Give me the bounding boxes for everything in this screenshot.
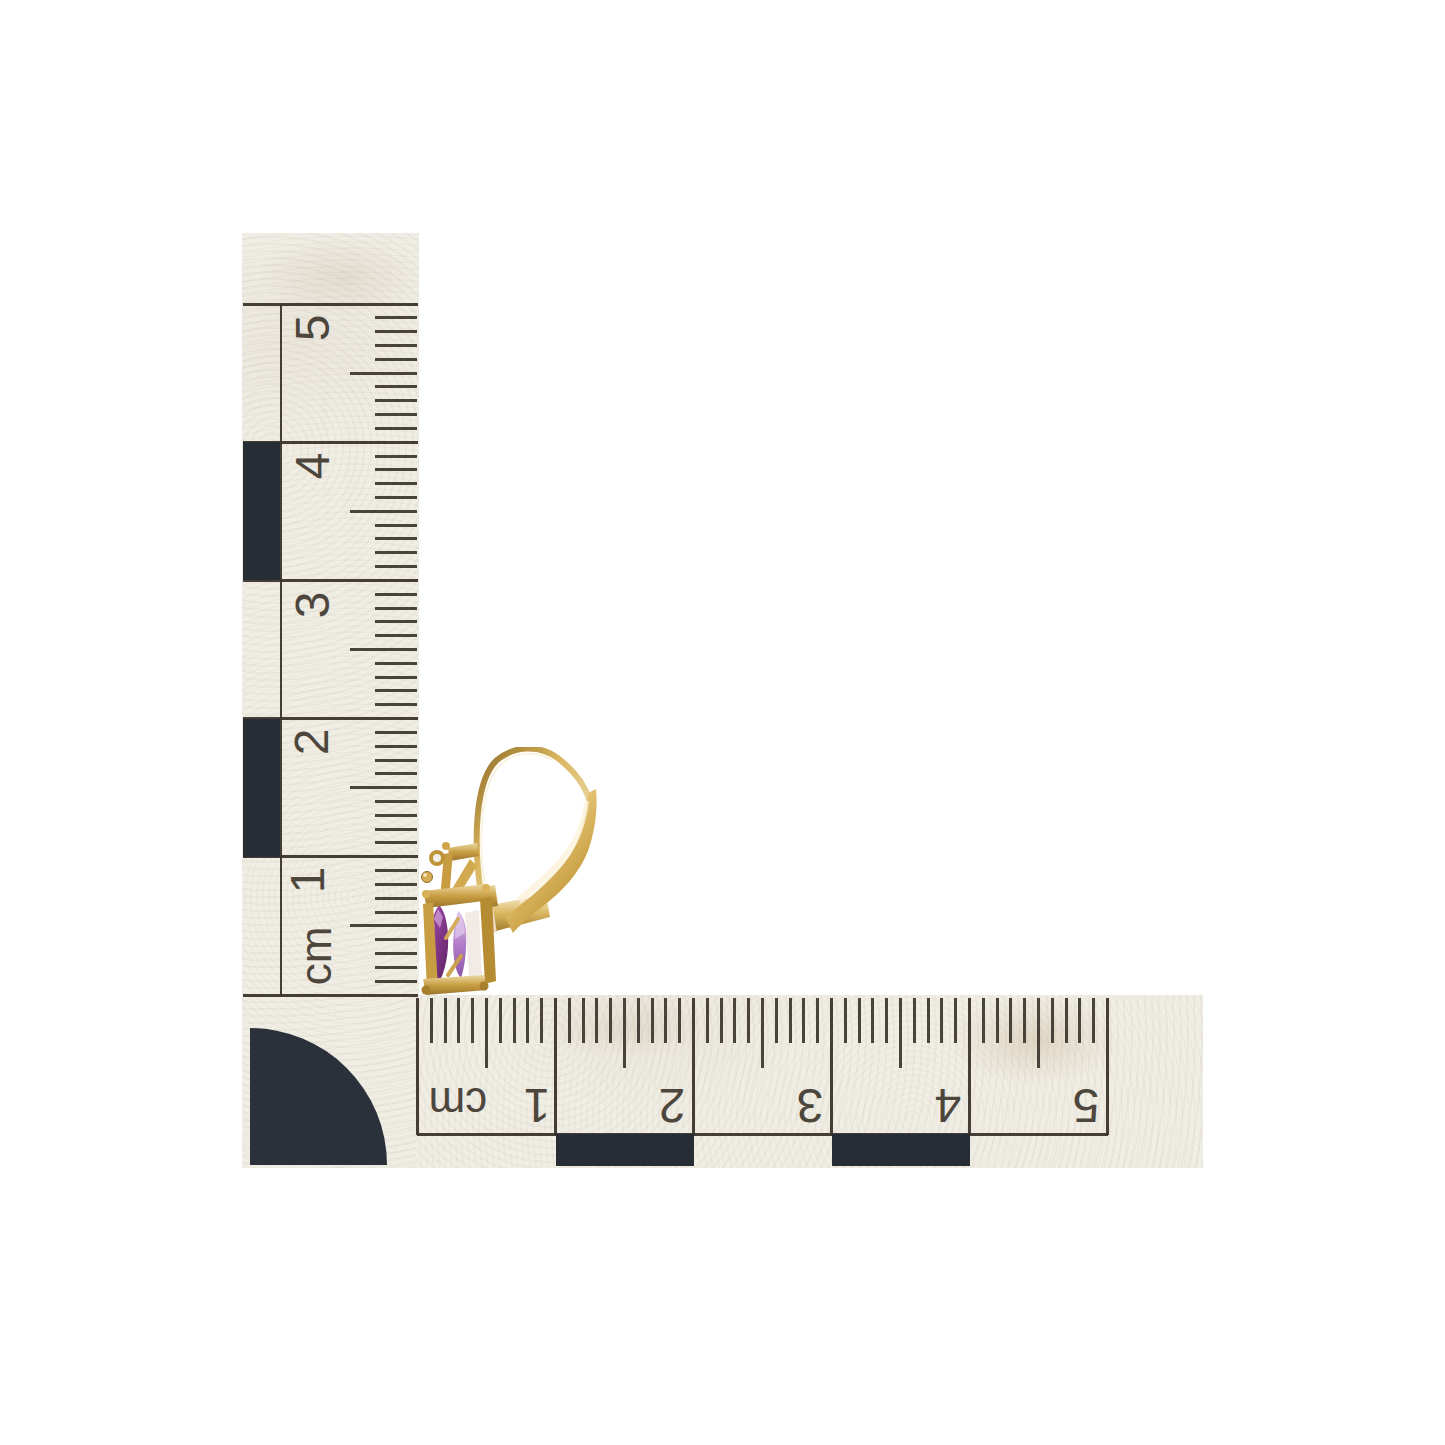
tick-mark <box>375 731 417 734</box>
tick-mark <box>678 998 681 1043</box>
tick-mark <box>844 998 847 1043</box>
tick-mark <box>375 759 417 762</box>
basket-inner-light <box>465 910 482 978</box>
scale-label-3: 3 <box>289 592 337 619</box>
tick-mark <box>375 524 417 527</box>
scale-label-1: 1 <box>284 867 332 894</box>
tick-mark <box>350 648 417 651</box>
cm-mark-line <box>830 998 833 1135</box>
tick-mark <box>375 316 417 319</box>
tick-mark <box>375 662 417 665</box>
tick-mark <box>375 689 417 692</box>
tick-mark <box>375 841 417 844</box>
tick-mark <box>526 998 529 1043</box>
tick-mark <box>375 966 417 969</box>
earring-clasp-knob <box>422 872 433 883</box>
earring <box>413 747 613 997</box>
tick-mark <box>375 330 417 333</box>
tick-mark <box>375 413 417 416</box>
tick-mark <box>664 998 667 1043</box>
basket-foot <box>422 986 431 995</box>
tick-mark <box>485 998 488 1068</box>
tick-mark <box>471 998 474 1043</box>
tick-mark <box>733 998 736 1043</box>
cm-mark-line <box>692 998 695 1135</box>
tick-mark <box>350 372 417 375</box>
tick-mark <box>375 344 417 347</box>
cm-mark-line <box>243 303 418 306</box>
tick-mark <box>375 814 417 817</box>
tick-mark <box>1078 998 1081 1043</box>
tick-mark <box>375 551 417 554</box>
tick-mark <box>375 952 417 955</box>
tick-mark <box>940 998 943 1043</box>
tick-mark <box>375 980 417 983</box>
tick-mark <box>720 998 723 1043</box>
tick-mark <box>375 468 417 471</box>
tick-mark <box>350 786 417 789</box>
tick-mark <box>375 703 417 706</box>
checker-segment <box>243 719 280 857</box>
tick-mark <box>927 998 930 1043</box>
tick-mark <box>375 828 417 831</box>
scale-label-cm: cm <box>429 1081 488 1125</box>
scale-label-3: 3 <box>797 1081 824 1129</box>
checker-segment <box>832 1134 970 1166</box>
tick-mark <box>375 565 417 568</box>
tick-mark <box>761 998 764 1068</box>
basket-top-nub <box>422 890 430 898</box>
tick-mark <box>375 496 417 499</box>
tick-mark <box>375 897 417 900</box>
checker-segment <box>556 1134 694 1166</box>
tick-mark <box>609 998 612 1043</box>
tick-mark <box>540 998 543 1043</box>
tick-mark <box>651 998 654 1043</box>
scale-label-1: 1 <box>524 1081 551 1129</box>
tick-mark <box>375 869 417 872</box>
tick-mark <box>350 510 417 513</box>
tick-mark <box>595 998 598 1043</box>
scale-label-4: 4 <box>935 1081 962 1129</box>
basket-top-nub <box>482 884 490 892</box>
tick-mark <box>375 455 417 458</box>
tick-mark <box>871 998 874 1043</box>
tick-mark <box>375 593 417 596</box>
tick-mark <box>444 998 447 1043</box>
tick-mark <box>637 998 640 1043</box>
tick-mark <box>816 998 819 1043</box>
tick-mark <box>375 800 417 803</box>
tick-mark <box>747 998 750 1043</box>
tick-mark <box>582 998 585 1043</box>
tick-mark <box>1009 998 1012 1043</box>
tick-mark <box>375 482 417 485</box>
photo-stage: 54321cmcm12345 <box>0 0 1445 1445</box>
cm-mark-line <box>416 998 419 1135</box>
tick-mark <box>885 998 888 1043</box>
tick-mark <box>375 358 417 361</box>
tick-mark <box>513 998 516 1043</box>
tick-mark <box>789 998 792 1043</box>
tick-mark <box>899 998 902 1068</box>
tick-mark <box>706 998 709 1043</box>
tick-mark <box>996 998 999 1043</box>
basket-foot <box>480 982 489 991</box>
tick-mark <box>499 998 502 1043</box>
tick-mark <box>375 620 417 623</box>
earring-wire-highlight <box>481 754 552 887</box>
tick-mark <box>375 676 417 679</box>
tick-mark <box>375 772 417 775</box>
tick-mark <box>350 924 417 927</box>
tick-mark <box>375 385 417 388</box>
scale-label-2: 2 <box>288 729 336 756</box>
earring-clasp-ring <box>431 852 443 864</box>
tick-mark <box>1092 998 1095 1043</box>
tick-mark <box>858 998 861 1043</box>
scale-label-4: 4 <box>289 453 337 480</box>
cm-mark-line <box>243 994 418 997</box>
tick-mark <box>457 998 460 1043</box>
scale-label-5: 5 <box>289 315 337 342</box>
tick-mark <box>954 998 957 1043</box>
tick-mark <box>1065 998 1068 1043</box>
tick-mark <box>375 399 417 402</box>
number-row-base-line <box>417 1133 1108 1136</box>
scale-label-5: 5 <box>1073 1081 1100 1129</box>
cm-mark-line <box>554 998 557 1135</box>
tick-mark <box>802 998 805 1043</box>
tick-mark <box>375 607 417 610</box>
tick-mark <box>623 998 626 1068</box>
tick-mark <box>375 911 417 914</box>
earring-clasp-knob-gleam <box>423 873 427 877</box>
tick-mark <box>375 883 417 886</box>
scale-label-2: 2 <box>659 1081 686 1129</box>
scale-label-cm: cm <box>294 927 338 986</box>
tick-mark <box>982 998 985 1043</box>
tick-mark <box>430 998 433 1043</box>
tick-mark <box>568 998 571 1043</box>
tick-mark <box>375 938 417 941</box>
cm-mark-line <box>1106 998 1109 1135</box>
earring-clasp-nub <box>442 842 450 850</box>
tick-mark <box>375 745 417 748</box>
cm-mark-line <box>968 998 971 1135</box>
tick-mark <box>375 427 417 430</box>
tick-mark <box>375 634 417 637</box>
tick-mark <box>1023 998 1026 1043</box>
tick-mark <box>1037 998 1040 1068</box>
tick-mark <box>775 998 778 1043</box>
checker-segment <box>243 442 280 580</box>
tick-mark <box>913 998 916 1043</box>
tick-mark <box>1051 998 1054 1043</box>
tick-mark <box>375 537 417 540</box>
